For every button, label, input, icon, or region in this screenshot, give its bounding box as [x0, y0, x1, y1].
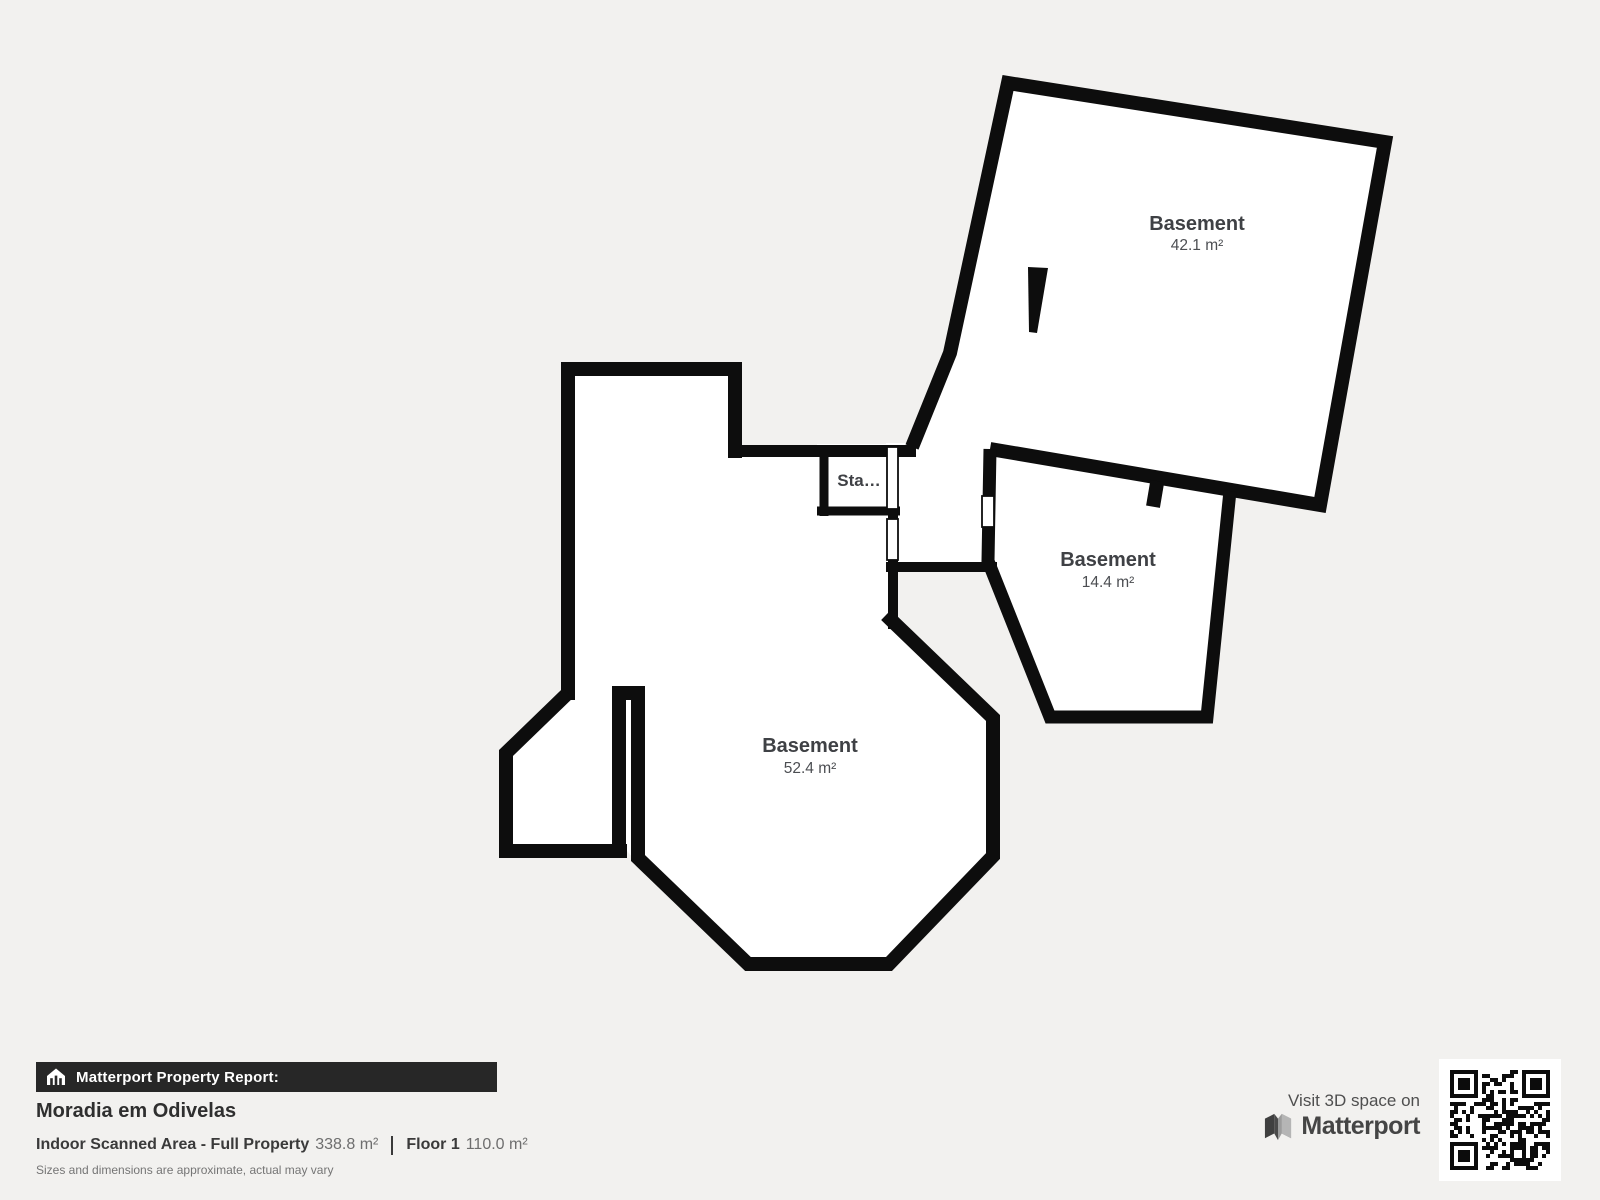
room-area-basement-42: 42.1 m² — [1171, 237, 1224, 254]
stats-divider — [391, 1136, 393, 1155]
door-basement-14-left — [982, 496, 994, 527]
room-label-basement-14: Basement — [1060, 549, 1156, 571]
stat-full-property-value: 338.8 m² — [315, 1136, 378, 1154]
matterport-brand: Matterport — [1263, 1112, 1420, 1141]
qr-code-pattern — [1439, 1059, 1561, 1181]
room-area-basement-52: 52.4 m² — [784, 760, 837, 777]
stat-full-property-label: Indoor Scanned Area - Full Property — [36, 1136, 309, 1154]
report-badge-label: Matterport Property Report: — [76, 1069, 279, 1086]
door-below-stairs — [887, 519, 898, 560]
property-name: Moradia em Odivelas — [36, 1100, 236, 1123]
matterport-floorplan-report: Basement 42.1 m² Basement 14.4 m² Baseme… — [0, 0, 1600, 1200]
room-label-basement-42: Basement — [1149, 213, 1245, 235]
room-label-stairs: Sta… — [837, 471, 880, 490]
disclaimer-note: Sizes and dimensions are approximate, ac… — [36, 1163, 333, 1177]
room-area-basement-14: 14.4 m² — [1082, 574, 1135, 591]
room-label-basement-52: Basement — [762, 735, 858, 757]
qr-code — [1439, 1059, 1561, 1181]
house-icon — [46, 1068, 66, 1086]
door-stairs-right — [887, 447, 898, 509]
matterport-logo-icon — [1263, 1113, 1293, 1141]
stat-floor-value: 110.0 m² — [466, 1136, 528, 1154]
room-basement-42-floor — [912, 83, 1385, 505]
floorplan-canvas: Basement 42.1 m² Basement 14.4 m² Baseme… — [0, 0, 1600, 1200]
corridor-floor — [886, 443, 995, 567]
report-badge-bar: Matterport Property Report: — [36, 1062, 497, 1092]
visit-3d-text: Visit 3D space on — [1288, 1091, 1420, 1111]
matterport-wordmark: Matterport — [1301, 1112, 1420, 1141]
stat-floor-label: Floor 1 — [406, 1136, 459, 1154]
area-stats: Indoor Scanned Area - Full Property 338.… — [36, 1136, 528, 1155]
